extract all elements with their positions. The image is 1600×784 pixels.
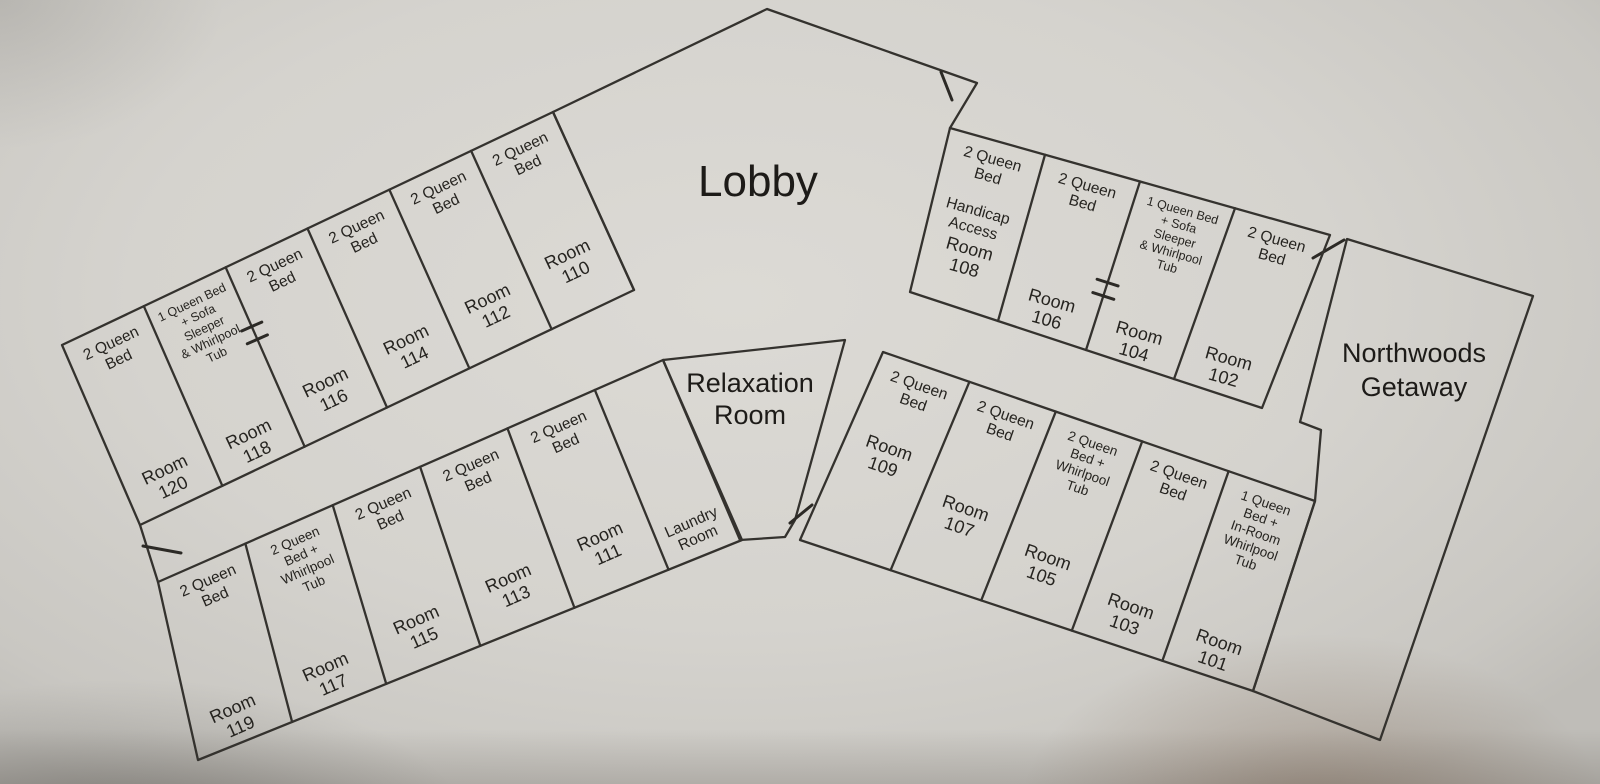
northeast-wing: 2 QueenBedHandicapAccessRoom1082 QueenBe… — [910, 128, 1330, 408]
room-number-label: Room101 — [1187, 625, 1245, 678]
lobby-door-mark — [941, 72, 952, 100]
connecting-door-mark — [247, 335, 267, 344]
room-type-label: 2 QueenBed +WhirlpoolTub — [266, 522, 342, 601]
room-wings: 2 QueenBedRoom1201 Queen Bed+ SofaSleepe… — [62, 112, 1330, 760]
room-number-label: Room118 — [223, 415, 283, 472]
southeast-wing: 2 QueenBedRoom1092 QueenBedRoom1072 Quee… — [800, 352, 1315, 691]
room-type-label: 2 QueenBed — [1142, 457, 1210, 509]
room-number-label: Room105 — [1016, 540, 1074, 593]
getaway-label-line2: Getaway — [1361, 372, 1468, 402]
room-number-label: Room117 — [299, 648, 359, 704]
room-type-label: 2 QueenBed +WhirlpoolTub — [1048, 427, 1121, 504]
room-number-label: Room111 — [574, 518, 634, 574]
relaxation-label-line1: Relaxation — [686, 368, 814, 398]
room-number-label: Room106 — [1021, 284, 1078, 335]
room-type-label: 1 QueenBed +In-RoomWhirlpoolTub — [1217, 487, 1296, 579]
room-type-label: 2 QueenBed — [1051, 170, 1118, 220]
floor-plan-image: 2 QueenBedRoom1201 Queen Bed+ SofaSleepe… — [0, 0, 1600, 784]
room-type-label: 2 QueenBed — [1241, 224, 1308, 274]
room-number-label: Room112 — [461, 279, 521, 336]
room-number-label: Room113 — [482, 559, 542, 615]
lobby-walls — [553, 9, 977, 290]
room-type-label: 2 QueenBedHandicapAccess — [939, 142, 1026, 245]
room-number-label: Room107 — [933, 491, 991, 544]
room-type-label: 1 Queen Bed+ SofaSleeper& WhirlpoolTub — [1130, 194, 1220, 283]
getaway-label-line1: Northwoods — [1342, 338, 1486, 368]
lobby-label: Lobby — [698, 157, 818, 206]
room-number-label: Room103 — [1099, 589, 1157, 642]
floor-plan-photo: 2 QueenBedRoom1201 Queen Bed+ SofaSleepe… — [0, 0, 1600, 784]
getaway-outline — [1253, 239, 1533, 740]
southwest-wing: 2 QueenBedRoom1192 QueenBed +WhirlpoolTu… — [158, 360, 742, 760]
northwest-wing: 2 QueenBedRoom1201 Queen Bed+ SofaSleepe… — [62, 112, 634, 525]
room-number-label: Room114 — [380, 320, 440, 377]
room-number-label: Room120 — [139, 450, 199, 507]
room-number-label: Room116 — [299, 363, 359, 420]
room-number-label: Room109 — [857, 431, 915, 484]
room-number-label: Room115 — [390, 601, 450, 657]
room-number-label: Room110 — [541, 235, 601, 292]
getaway-door-mark — [1313, 240, 1344, 258]
room-type-label: 2 QueenBed — [882, 368, 950, 420]
room-divider-wall — [891, 382, 970, 570]
west-corridor-end-wall — [140, 525, 158, 582]
room-type-label: 2 QueenBed — [969, 398, 1037, 450]
relaxation-label-line2: Room — [714, 400, 786, 430]
room-number-label: Room102 — [1198, 342, 1255, 393]
connecting-door-mark — [242, 322, 262, 331]
